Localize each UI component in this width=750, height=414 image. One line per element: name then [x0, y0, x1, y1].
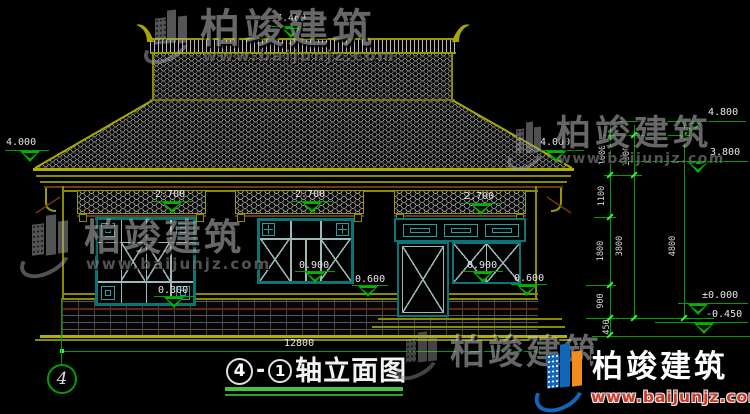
title-block: 4 - 1 轴立面图: [226, 355, 407, 387]
title-underline-thick: [225, 387, 403, 391]
watermark-logo-icon: [506, 120, 548, 170]
title-axis-start: 4: [234, 361, 246, 381]
canopy-3: [394, 190, 526, 214]
dim-connector: [592, 336, 750, 337]
logo-building: [167, 10, 176, 45]
logo-building: [32, 223, 44, 255]
logo-building: [155, 17, 166, 44]
dim-label: 900: [597, 293, 606, 308]
grid-bubble-4: 4: [47, 364, 77, 394]
hip-line-left: [35, 100, 153, 168]
ridge-curl-right-icon: [452, 24, 470, 42]
level-label-ledge-right: 0.600: [514, 274, 544, 284]
transom-motif: [444, 224, 478, 237]
level-label-sill-mid: 0.900: [299, 261, 329, 271]
eave-fascia-3: [40, 181, 567, 183]
elevation-drawing-canvas: 7.469 4.000 4.000 4.800 3.800 ±0.000 -0.…: [0, 0, 750, 414]
eave-fascia-4: [44, 186, 563, 188]
watermark-brand: 柏竣建筑: [84, 219, 244, 256]
transom-lattice-band: [394, 218, 526, 242]
eave-ornament-left-brace: [36, 197, 60, 213]
grid-bubble-4-label: 4: [57, 369, 68, 389]
watermark-logo-icon: [142, 8, 196, 62]
eave-fascia-1: [33, 168, 574, 171]
level-label-canopy-1: 2.700: [155, 190, 185, 200]
level-marker-triangle: [517, 285, 537, 296]
title-axis-start-bubble: 4: [226, 358, 253, 385]
title-separator: -: [256, 360, 265, 382]
logo-building: [418, 331, 427, 362]
watermark-site: www.baijunjz.com: [86, 257, 271, 272]
logo-building: [572, 350, 582, 386]
brick-accent-line: [62, 308, 538, 310]
window-2-cross-motif: [336, 223, 349, 236]
level-label-canopy-2: 2.700: [295, 190, 325, 200]
logo-building: [560, 343, 570, 388]
logo-building: [547, 353, 559, 388]
window-2-mullion: [290, 221, 292, 281]
dim-label: 3800: [616, 236, 625, 256]
level-marker-triangle: [302, 202, 322, 213]
watermark-site: www.baijunjz.com: [558, 152, 725, 166]
eave-ornament-left-icon: [46, 186, 56, 211]
canopy-2-fascia: [235, 215, 364, 217]
level-marker-triangle: [305, 272, 325, 283]
site-logo-brand: 柏竣建筑: [592, 352, 728, 383]
level-label-canopy-3: 2.700: [464, 192, 494, 202]
grid-line-4: [61, 298, 62, 364]
logo-building: [178, 15, 187, 43]
dim-label: 1100: [598, 186, 607, 206]
level-marker-triangle: [164, 297, 184, 308]
watermark-brand: 柏竣建筑: [200, 9, 376, 49]
logo-building: [406, 338, 416, 362]
title-axis-end: 1: [275, 362, 285, 380]
level-label-sill-low: 0.300: [158, 286, 188, 296]
level-marker-triangle: [473, 272, 493, 283]
logo-building: [526, 122, 533, 154]
level-marker-triangle: [688, 304, 708, 315]
logo-building: [516, 128, 524, 153]
transom-motif: [403, 224, 437, 237]
window-1-rail: [98, 281, 193, 283]
watermark-logo-icon: [18, 212, 78, 276]
dim-label: 450: [603, 319, 612, 334]
level-marker-triangle: [358, 286, 378, 297]
dim-label: 4800: [669, 236, 678, 256]
level-label-eave-left: 4.000: [6, 138, 36, 148]
level-label-ground: ±0.000: [702, 291, 738, 301]
canopy-3-fascia: [394, 215, 526, 217]
logo-building: [58, 220, 68, 253]
title-text: 轴立面图: [295, 358, 407, 385]
window-2-cross-motif: [262, 223, 275, 236]
level-label-ledge-mid: 0.600: [355, 275, 385, 285]
level-marker-triangle: [471, 204, 491, 215]
level-marker-triangle: [694, 323, 714, 334]
overall-width-label: 12800: [284, 339, 314, 349]
dim-connector: [586, 285, 616, 286]
dim-label: 1800: [597, 241, 606, 261]
level-label-roof-high: 4.800: [708, 108, 738, 118]
window-1-corner-motif: [101, 286, 115, 300]
watermark-brand: 柏竣建筑: [556, 117, 712, 152]
level-label-sill-right: 0.900: [467, 261, 497, 271]
watermark-logo-icon: [394, 330, 444, 378]
watermark-site: www.baijunjz.com: [203, 49, 396, 64]
eave-ornament-right-icon: [551, 186, 561, 211]
transom-motif: [485, 224, 519, 237]
canopy-corbel: [354, 214, 362, 222]
site-logo-url: www.baijunjz.com: [591, 390, 750, 406]
level-marker-triangle: [20, 151, 40, 162]
title-underline-thin: [225, 394, 403, 396]
dim-connector: [594, 217, 616, 218]
logo-building: [428, 336, 437, 361]
logo-building: [534, 127, 541, 153]
door-step-edge-2: [372, 326, 565, 328]
title-axis-end-bubble: 1: [268, 359, 292, 383]
eave-fascia-2: [36, 175, 571, 177]
door-step-edge-1: [378, 318, 562, 320]
eave-ornament-right-brace: [547, 197, 571, 213]
door-x-leaf: [402, 246, 444, 313]
logo-building: [46, 214, 56, 255]
entry-door: [397, 242, 449, 317]
site-logo-icon: [533, 341, 591, 411]
level-marker-triangle: [162, 202, 182, 213]
